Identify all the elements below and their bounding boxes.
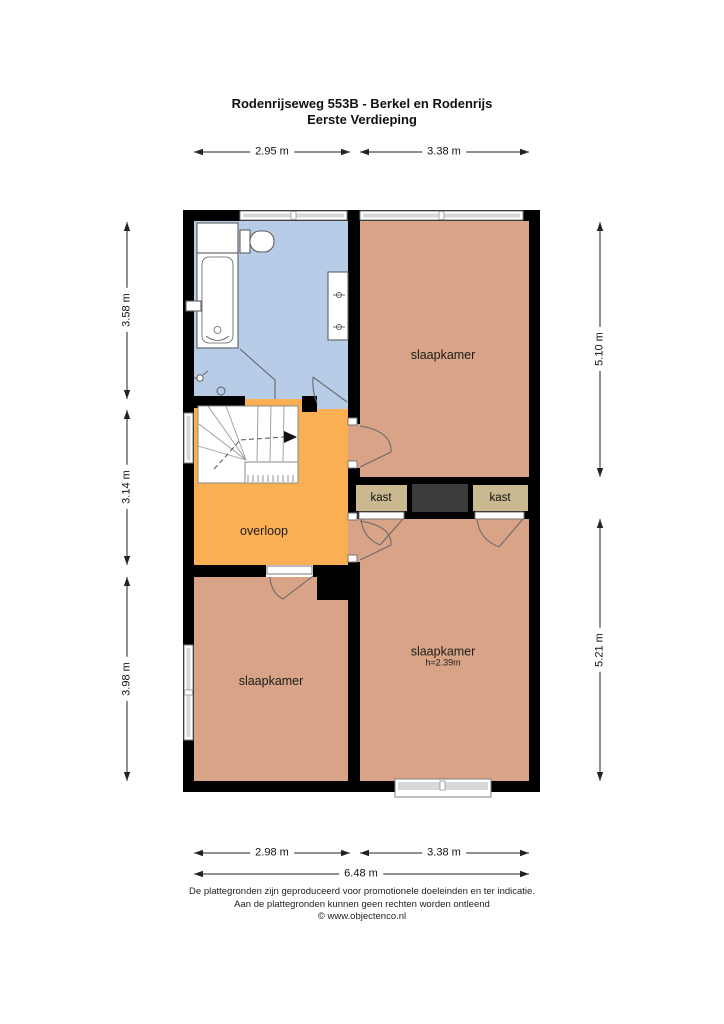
title-block: Rodenrijseweg 553B - Berkel en Rodenrijs…: [0, 96, 724, 128]
dim-bottom-left: 2.98 m: [250, 847, 294, 860]
window-left-bedroom: [184, 645, 193, 740]
window-top-bedroom: [360, 211, 523, 220]
window-top-bathroom: [240, 211, 347, 220]
dim-left-top: 3.58 m: [121, 288, 134, 332]
wall-landing-bottom-left: [183, 565, 266, 577]
wall-chimney-block: [317, 577, 352, 600]
closet-right-door-leaf: [475, 512, 524, 519]
room-label-bedroom-bottom-right: slaapkamer: [411, 645, 476, 659]
staircase: [198, 406, 298, 483]
bathtub-icon: [197, 253, 238, 348]
dim-bottom-right: 3.38 m: [422, 847, 466, 860]
bedroom-bottom-left-door-leaf: [267, 566, 312, 574]
wall-central-upper: [348, 210, 360, 424]
dim-right-top: 5.10 m: [594, 327, 607, 371]
room-label-bedroom-top-right: slaapkamer: [411, 348, 476, 362]
dim-left-middle: 3.14 m: [121, 465, 134, 509]
room-label-bedroom-bottom-left: slaapkamer: [239, 674, 304, 688]
closet-left-door-leaf: [359, 512, 404, 519]
room-label-landing: overloop: [240, 524, 288, 538]
dim-bottom-total: 6.48 m: [339, 868, 383, 881]
shower-head-icon: [197, 375, 203, 381]
bathroom-door-opening: [317, 399, 348, 409]
washbasin-icon: [328, 272, 348, 340]
wall-landing-bottom-right: [313, 565, 360, 577]
window-bottom-bedroom: [395, 779, 491, 797]
closet-right-label: kast: [489, 492, 510, 504]
page-subtitle: Eerste Verdieping: [0, 112, 724, 128]
dim-top-right: 3.38 m: [422, 146, 466, 159]
wall-bathroom-stub: [302, 396, 317, 412]
footer-line-2: Aan de plattegronden kunnen geen rechten…: [0, 899, 724, 912]
window-left-stairs: [184, 413, 193, 463]
footer-copyright: © www.objectenco.nl: [0, 911, 724, 924]
footer-line-1: De plattegronden zijn geproduceerd voor …: [0, 886, 724, 899]
dim-top-left: 2.95 m: [250, 146, 294, 159]
dim-left-bottom: 3.98 m: [121, 657, 134, 701]
shower-mixer-icon: [186, 301, 201, 311]
footer-disclaimer: De plattegronden zijn geproduceerd voor …: [0, 886, 724, 924]
floorplan-page: Rodenrijseweg 553B - Berkel en Rodenrijs…: [0, 0, 724, 1024]
toilet-icon: [240, 230, 274, 253]
room-label-bedroom-bottom-right-group: slaapkamer h=2.39m: [411, 645, 476, 668]
closet-left-label: kast: [370, 492, 391, 504]
page-title: Rodenrijseweg 553B - Berkel en Rodenrijs: [0, 96, 724, 112]
dim-right-bottom: 5.21 m: [594, 628, 607, 672]
ceiling-height-note: h=2.39m: [411, 658, 476, 668]
duct-niche: [197, 223, 238, 253]
closet-dark-box: [412, 484, 468, 512]
